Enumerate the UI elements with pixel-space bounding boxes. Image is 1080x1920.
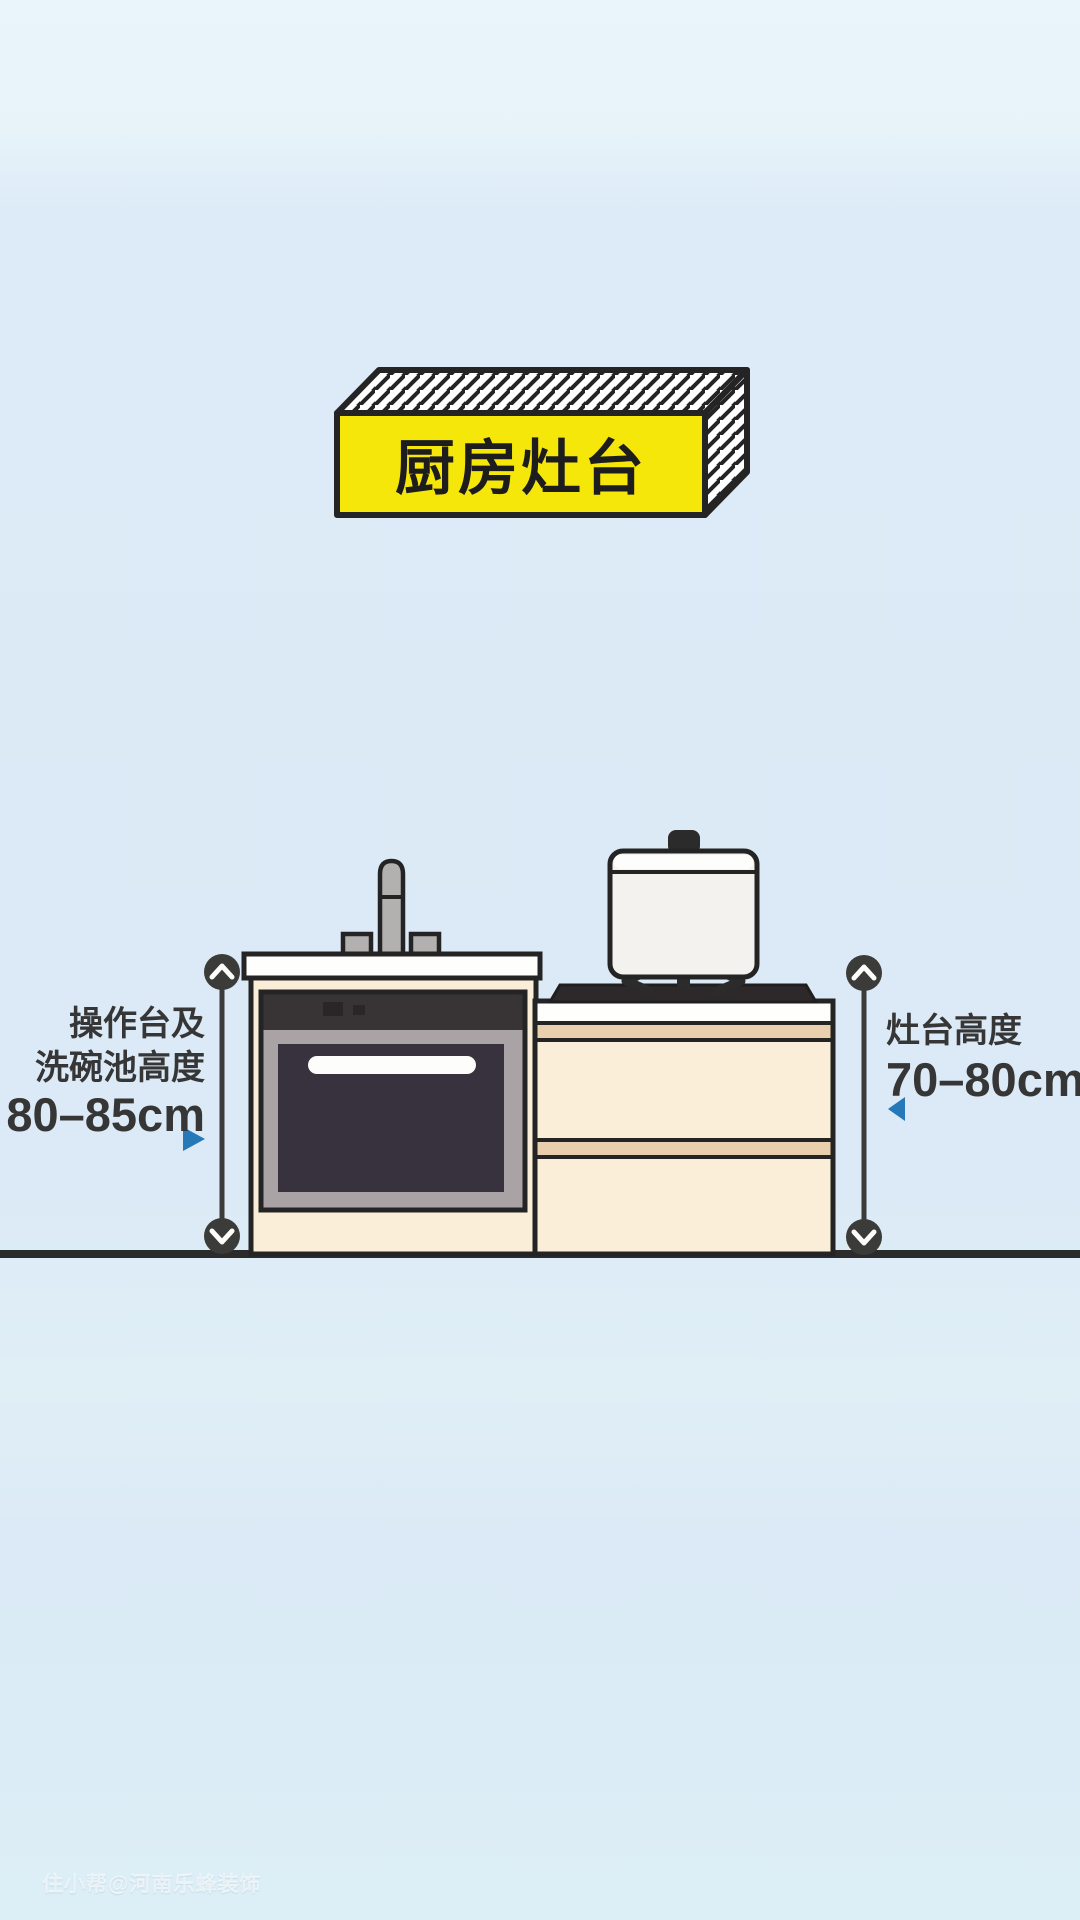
drawer-top-trim <box>535 1023 833 1040</box>
label-right-line1: 灶台高度 <box>886 1008 1080 1054</box>
pot-body <box>610 851 757 977</box>
oven-handle <box>308 1056 476 1074</box>
pot-lid-highlight <box>614 855 753 869</box>
dimension-left-bottom-end <box>204 1218 240 1254</box>
oven-button <box>353 1005 365 1015</box>
oven-control-panel <box>261 992 525 1030</box>
oven <box>261 992 525 1210</box>
infographic-canvas: 厨房灶台 操作台及 洗碗池高度 80–85cm 灶台高度 70–80cm 住小帮… <box>0 0 1080 1920</box>
drawer-1 <box>535 1040 833 1140</box>
label-counter-sink-height: 操作台及 洗碗池高度 80–85cm <box>0 1002 205 1140</box>
label-stove-height: 灶台高度 70–80cm <box>886 1008 1080 1106</box>
drawer-2 <box>535 1157 833 1254</box>
page-title: 厨房灶台 <box>337 412 705 514</box>
stove-countertop-band <box>535 1001 833 1023</box>
kitchen-illustration <box>0 0 1080 1920</box>
stove-cabinet <box>535 985 833 1254</box>
label-left-line2: 洗碗池高度 <box>0 1046 205 1090</box>
label-left-line1: 操作台及 <box>0 1002 205 1046</box>
dimension-left-top-end <box>204 954 240 990</box>
banner-top-face <box>337 370 747 413</box>
dimension-left <box>204 954 240 1254</box>
sink-cabinet <box>244 861 540 1254</box>
sink-countertop <box>244 954 540 978</box>
faucet <box>343 861 439 958</box>
watermark: 住小帮@河南乐蜂装饰 <box>42 1868 261 1898</box>
dimension-right <box>846 955 882 1255</box>
cooking-pot <box>610 830 757 991</box>
drawer-2-trim <box>535 1140 833 1157</box>
dimension-right-top-end <box>846 955 882 991</box>
faucet-column <box>380 861 403 958</box>
label-left-value: 80–85cm <box>0 1090 205 1140</box>
label-right-value: 70–80cm <box>886 1054 1080 1106</box>
oven-button <box>323 1002 343 1016</box>
dimension-right-bottom-end <box>846 1219 882 1255</box>
